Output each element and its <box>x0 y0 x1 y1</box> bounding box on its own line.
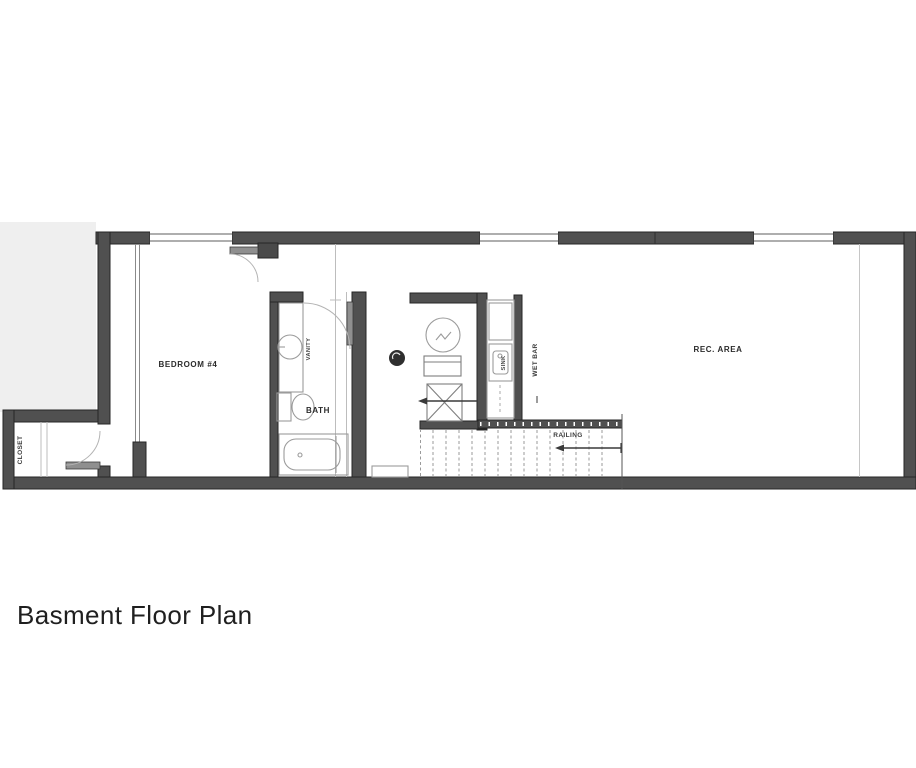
closet-door <box>66 431 100 469</box>
railing-label: RAILING <box>553 432 583 439</box>
bedroom-door <box>230 247 258 282</box>
water-heater <box>426 318 460 352</box>
stair-direction-arrow <box>555 443 621 453</box>
vanity-label: VANITY <box>306 338 312 361</box>
wet-bar-cabinet <box>489 303 512 340</box>
bath-label: BATH <box>306 406 330 415</box>
equipment-pad <box>427 384 462 421</box>
wet-bar-label: WET BAR <box>532 343 539 376</box>
sink-label: SINK <box>501 355 507 371</box>
floor-plan-page: BEDROOM #4 CLOSET VANITY BATH SINK WET B… <box>0 0 916 768</box>
window-1 <box>150 231 232 245</box>
rec-area-label: REC. AREA <box>693 345 742 354</box>
interior-walls <box>133 244 860 477</box>
plan-title: Basment Floor Plan <box>17 600 253 631</box>
bedroom-label: BEDROOM #4 <box>159 360 218 369</box>
bathtub <box>279 434 348 475</box>
hall-fixtures <box>372 350 408 477</box>
room-labels: BEDROOM #4 CLOSET VANITY BATH SINK WET B… <box>17 338 743 465</box>
hall-bench <box>372 466 408 477</box>
floor-plan-drawing: BEDROOM #4 CLOSET VANITY BATH SINK WET B… <box>0 0 916 768</box>
scan-shading <box>0 222 96 412</box>
closet-fixtures <box>41 422 47 477</box>
window-2 <box>480 231 558 245</box>
bath-fixtures <box>277 303 348 475</box>
floor-drain <box>389 350 405 366</box>
closet-label: CLOSET <box>17 436 24 465</box>
railing <box>478 420 622 428</box>
window-3 <box>754 231 833 245</box>
mechanical-fixtures <box>418 318 477 421</box>
furnace <box>424 356 461 376</box>
